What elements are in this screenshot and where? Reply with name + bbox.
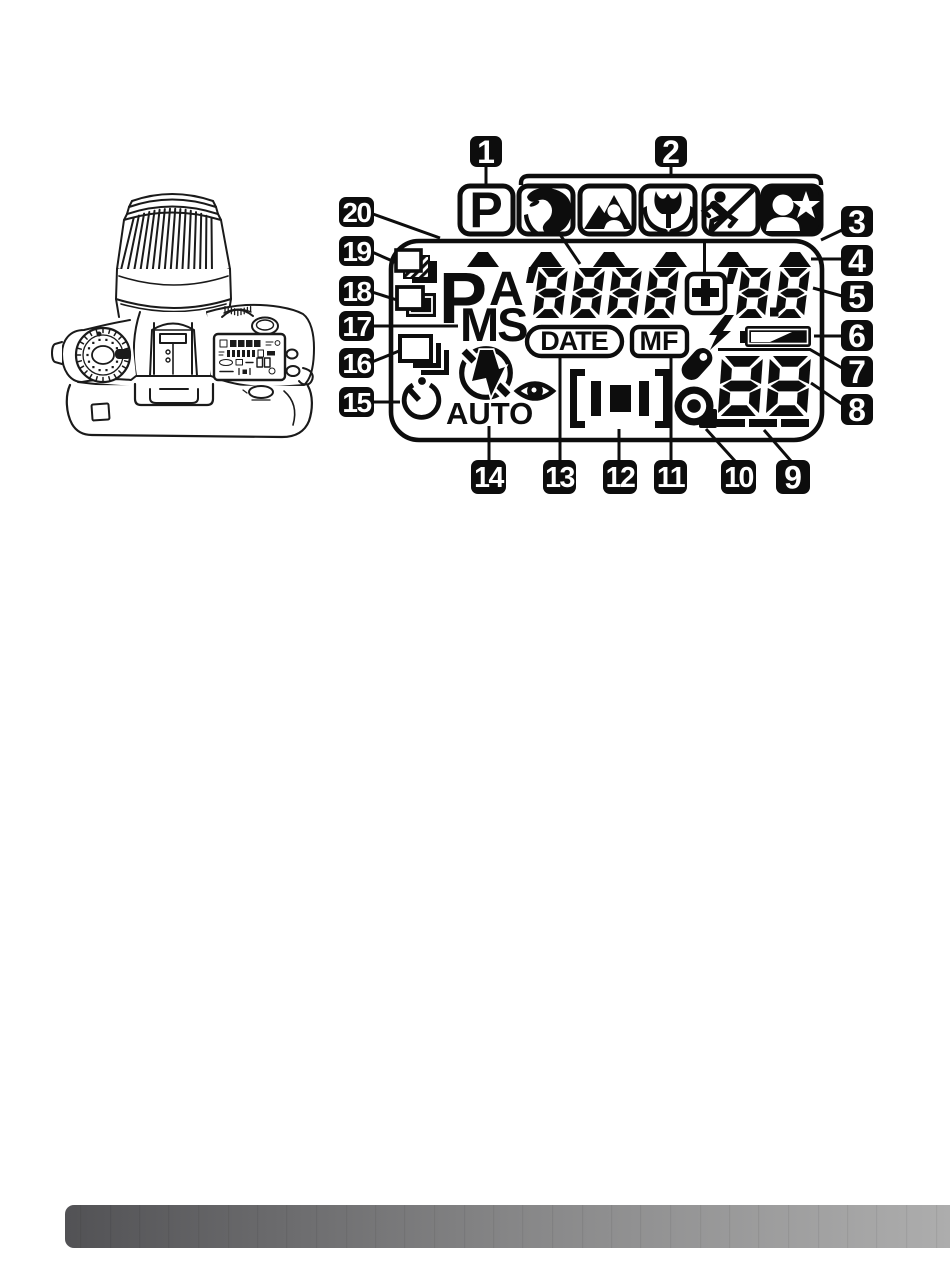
svg-text:7: 7 <box>848 354 866 390</box>
svg-text:3: 3 <box>848 204 866 240</box>
svg-text:1: 1 <box>477 134 495 170</box>
svg-text:13: 13 <box>545 462 574 494</box>
svg-text:14: 14 <box>474 462 504 494</box>
svg-text:MS: MS <box>460 298 527 351</box>
svg-text:20: 20 <box>342 197 371 228</box>
svg-text:6: 6 <box>848 318 866 354</box>
svg-text:5: 5 <box>848 279 866 315</box>
svg-text:10: 10 <box>724 462 753 494</box>
svg-text:18: 18 <box>342 276 371 307</box>
svg-text:8: 8 <box>848 392 866 428</box>
svg-text:P: P <box>469 182 502 238</box>
svg-text:15: 15 <box>342 387 371 418</box>
svg-text:11: 11 <box>657 462 686 494</box>
svg-text:12: 12 <box>606 462 635 494</box>
svg-text:AUTO: AUTO <box>446 396 533 431</box>
svg-text:4: 4 <box>848 243 866 279</box>
svg-text:DATE: DATE <box>540 326 608 356</box>
svg-text:17: 17 <box>342 311 371 342</box>
svg-text:MF: MF <box>640 326 679 356</box>
svg-text:16: 16 <box>342 348 371 379</box>
svg-text:9: 9 <box>784 459 802 495</box>
svg-text:19: 19 <box>342 236 371 267</box>
svg-text:2: 2 <box>662 134 680 170</box>
